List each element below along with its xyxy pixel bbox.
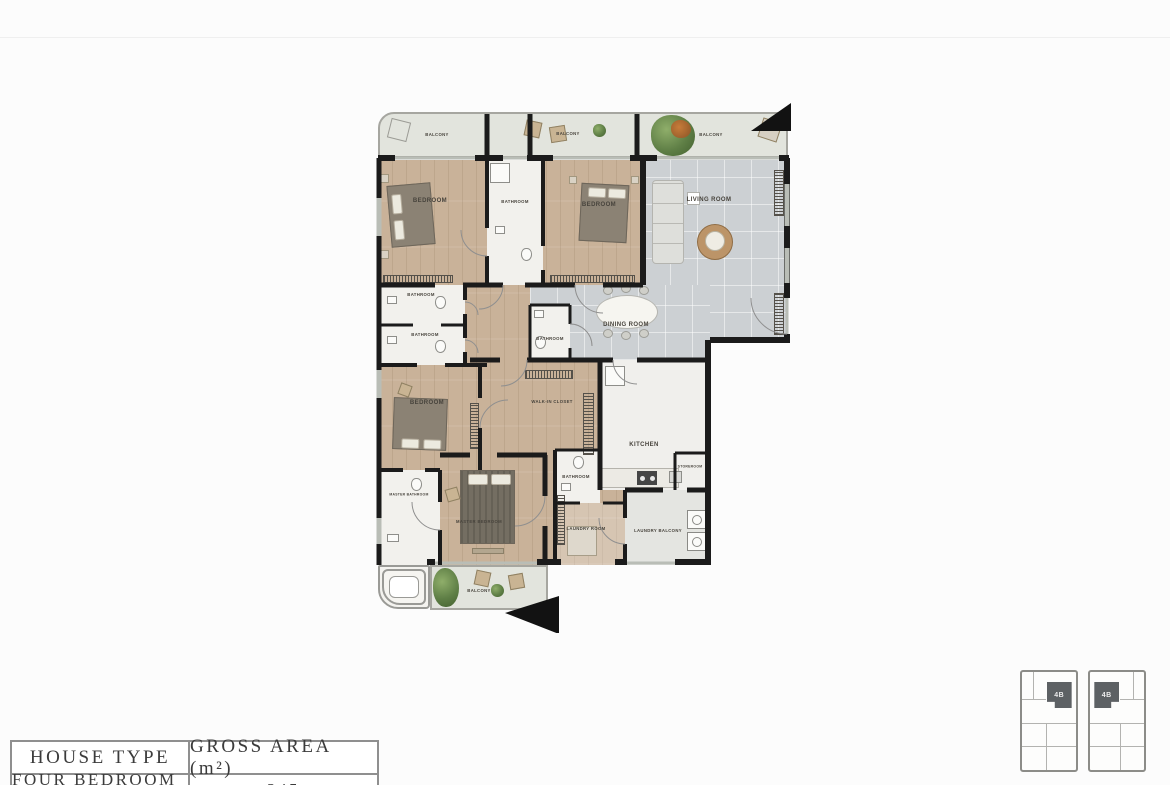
bed-bench-graphic <box>472 548 504 554</box>
room-label: MASTER BEDROOM <box>456 519 502 524</box>
balcony-table-plant-graphic <box>491 584 504 597</box>
closet-shelf-graphic <box>583 393 594 455</box>
nightstand-graphic <box>380 174 389 183</box>
top-divider-line <box>0 37 1170 38</box>
table-cell-house-type: FOUR BEDROOM B <box>12 775 190 785</box>
room-label: BEDROOM <box>582 202 616 208</box>
armchair-graphic <box>705 231 725 251</box>
room-bathroom-2 <box>378 285 465 325</box>
shower-graphic <box>490 163 510 183</box>
table-header-house-type: HOUSE TYPE <box>12 742 190 773</box>
sink-graphic <box>387 336 397 344</box>
room-label: STOREROOM <box>678 465 703 469</box>
sink-graphic <box>534 310 544 318</box>
plant-flower-graphic <box>671 120 691 138</box>
keyplan-left-unit: 4B <box>1020 670 1078 772</box>
room-label: MASTER BATHROOM <box>389 493 428 497</box>
plant-graphic <box>593 124 606 137</box>
balcony-chair-graphic <box>474 570 492 588</box>
room-label: BATHROOM <box>562 474 589 479</box>
table-header-row: HOUSE TYPE GROSS AREA (m²) <box>12 742 377 773</box>
laundry-shelf-graphic <box>557 495 565 545</box>
balcony-chair-graphic <box>508 573 525 590</box>
room-label: BEDROOM <box>410 400 444 406</box>
room-label: BEDROOM <box>413 198 447 204</box>
plant-graphic <box>433 568 459 607</box>
area-table: HOUSE TYPE GROSS AREA (m²) FOUR BEDROOM … <box>10 740 379 785</box>
toilet-graphic <box>411 478 422 491</box>
keyplan-unit-highlight: 4B <box>1094 682 1119 708</box>
room-label: LIVING ROOM <box>687 197 732 203</box>
room-label: BATHROOM <box>407 292 434 297</box>
floor-plan: BALCONY BALCONY BALCONY BEDROOM BATHROOM… <box>375 98 795 633</box>
room-label: BALCONY <box>556 131 579 136</box>
dining-chair-graphic <box>639 286 649 295</box>
room-label: KITCHEN <box>629 442 658 448</box>
toilet-graphic <box>521 248 532 261</box>
table-cell-gross-area: 245 <box>190 775 377 785</box>
room-label: BALCONY <box>699 132 722 137</box>
sofa-graphic <box>652 180 684 264</box>
dining-chair-graphic <box>603 329 613 338</box>
room-label: LAUNDRY BALCONY <box>634 528 682 533</box>
master-bed-graphic <box>460 470 515 544</box>
sink-graphic <box>561 483 571 491</box>
wardrobe-graphic <box>550 275 635 283</box>
room-label: BATHROOM <box>501 199 528 204</box>
nightstand-graphic <box>569 176 577 184</box>
room-master-bathroom <box>378 470 440 565</box>
toilet-graphic <box>573 456 584 469</box>
dining-chair-graphic <box>621 331 631 340</box>
keyplan: 4B 4B <box>1018 668 1150 776</box>
bathtub-graphic <box>382 569 426 605</box>
keyplan-unit-highlight: 4B <box>1047 682 1072 708</box>
toilet-graphic <box>435 340 446 353</box>
table-header-gross-area: GROSS AREA (m²) <box>190 742 377 773</box>
washer-graphic <box>687 510 706 529</box>
keyplan-unit-label: 4B <box>1102 692 1112 699</box>
wardrobe-graphic <box>383 275 453 283</box>
dining-chair-graphic <box>639 329 649 338</box>
stove-graphic <box>637 471 657 485</box>
sink-graphic <box>387 296 397 304</box>
room-label: BATHROOM <box>536 336 563 341</box>
nightstand-graphic <box>380 250 389 259</box>
room-label: BATHROOM <box>411 332 438 337</box>
sink-graphic <box>387 534 399 542</box>
washer-graphic <box>687 532 706 551</box>
room-bathroom-3 <box>378 325 465 365</box>
room-label: BALCONY <box>467 588 490 593</box>
keyplan-unit-label: 4B <box>1054 692 1064 699</box>
balcony-chair-graphic <box>524 120 543 139</box>
page: BALCONY BALCONY BALCONY BEDROOM BATHROOM… <box>0 0 1170 785</box>
fridge-graphic <box>605 366 625 386</box>
cabinet-graphic <box>774 293 784 335</box>
sink-graphic <box>495 226 505 234</box>
room-label: WALK-IN CLOSET <box>531 399 572 404</box>
toilet-graphic <box>435 296 446 309</box>
table-row: FOUR BEDROOM B 245 <box>12 773 377 785</box>
media-unit-graphic <box>774 170 784 216</box>
bed-graphic <box>386 182 435 248</box>
keyplan-right-unit: 4B <box>1088 670 1146 772</box>
dining-chair-graphic <box>621 284 631 293</box>
dining-chair-graphic <box>603 286 613 295</box>
room-label: LAUNDRY ROOM <box>566 526 605 531</box>
closet-shelf-graphic <box>525 370 573 379</box>
nightstand-graphic <box>631 176 639 184</box>
bed-graphic <box>579 183 630 243</box>
wardrobe-graphic <box>470 403 479 449</box>
room-label: BALCONY <box>425 132 448 137</box>
room-label: DINING ROOM <box>603 322 649 328</box>
kitchen-sink-graphic <box>669 471 682 483</box>
